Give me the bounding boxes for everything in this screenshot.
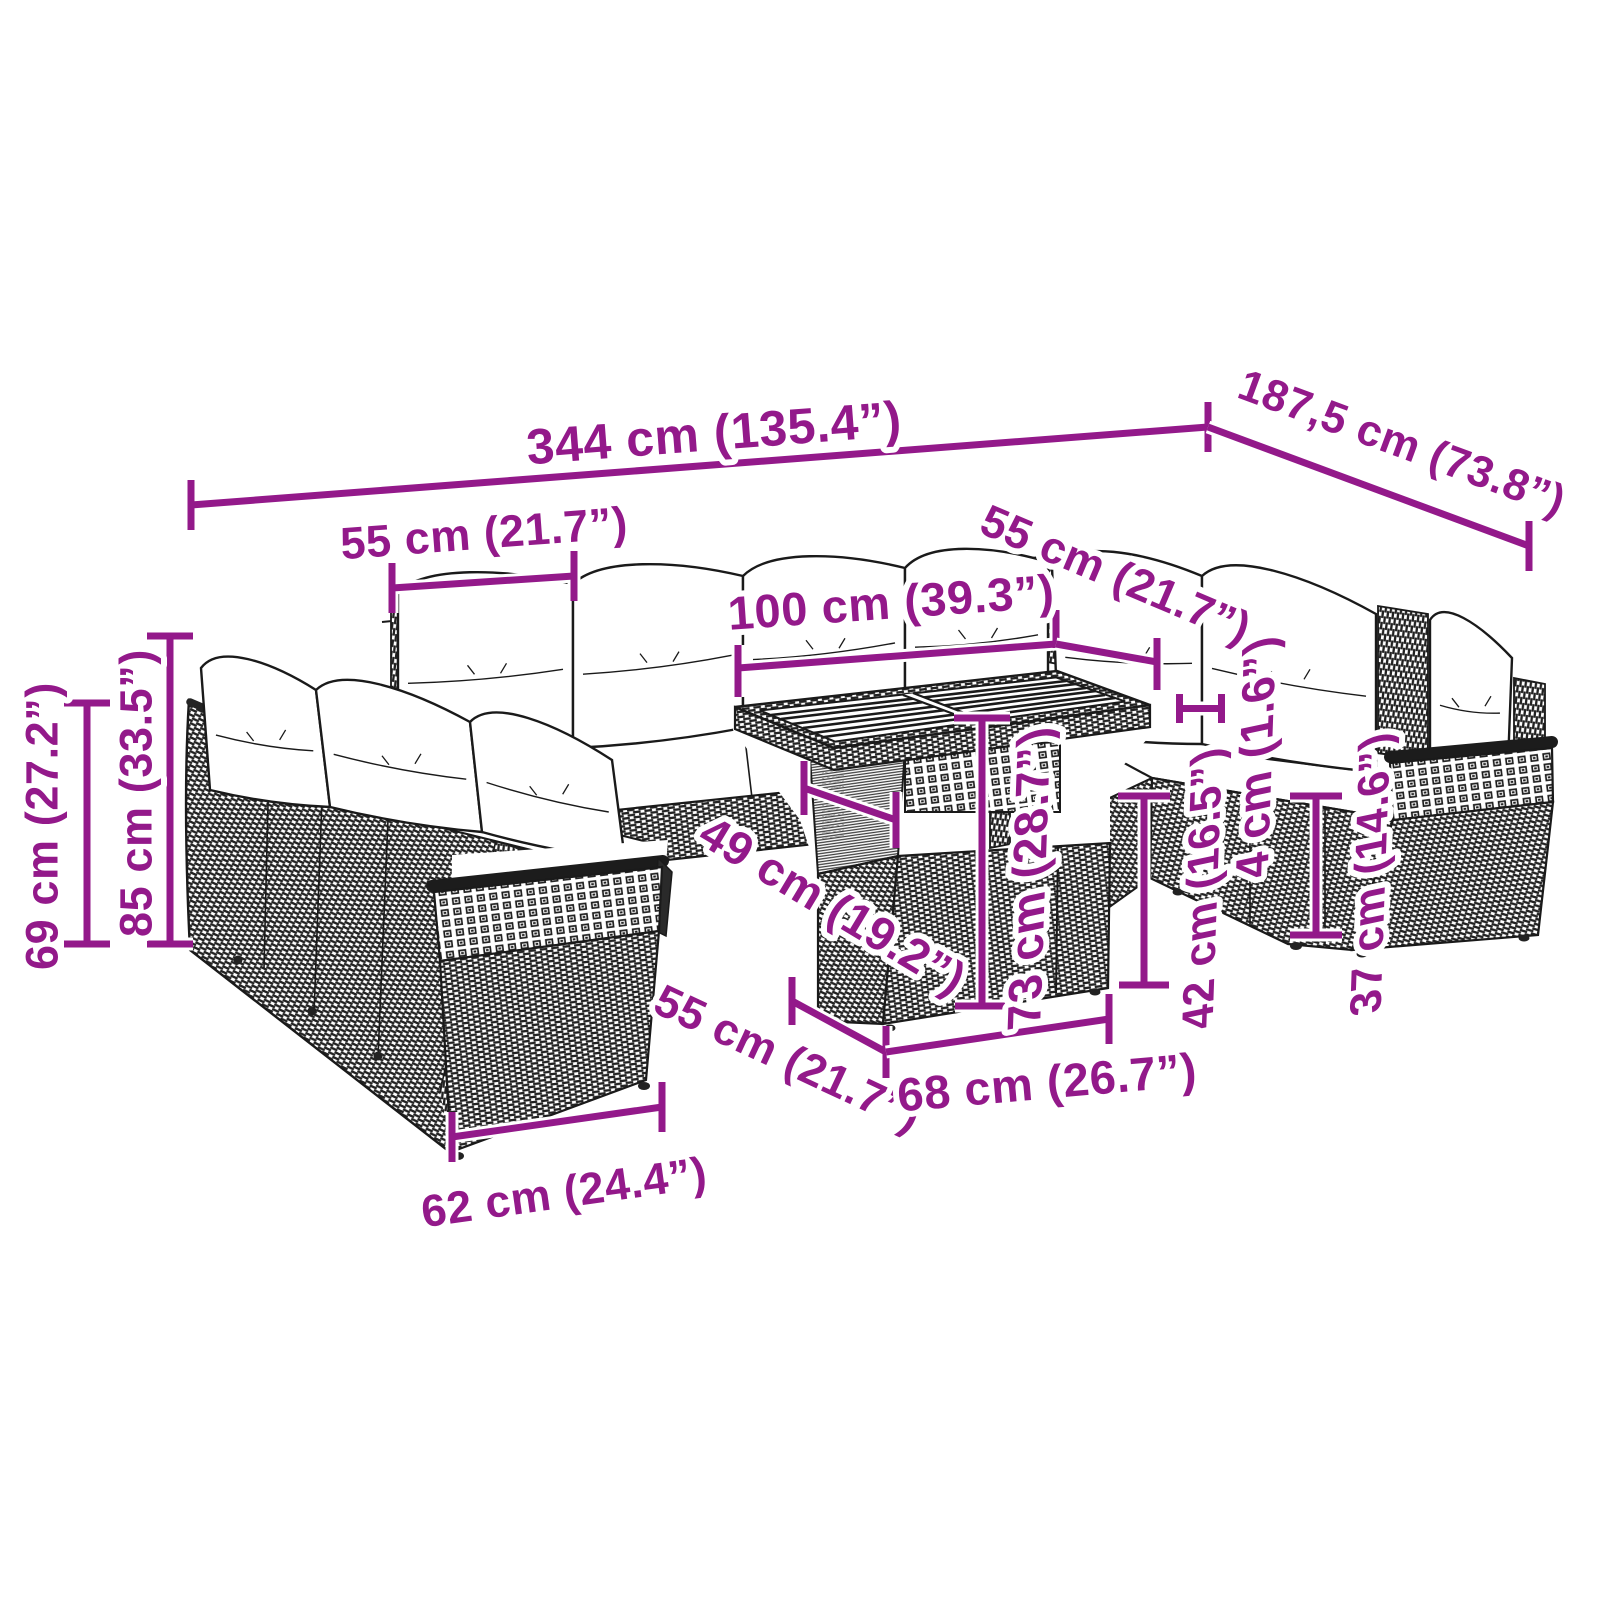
svg-text:73 cm (28.7”): 73 cm (28.7”): [998, 722, 1061, 1033]
svg-text:37 cm (14.6”): 37 cm (14.6”): [1342, 728, 1400, 1020]
svg-text:85 cm (33.5”): 85 cm (33.5”): [111, 649, 162, 937]
svg-text:4 cm (1.6”): 4 cm (1.6”): [1226, 632, 1286, 885]
svg-text:42 cm (16.5”): 42 cm (16.5”): [1174, 743, 1232, 1035]
svg-text:69 cm (27.2”): 69 cm (27.2”): [17, 682, 68, 970]
